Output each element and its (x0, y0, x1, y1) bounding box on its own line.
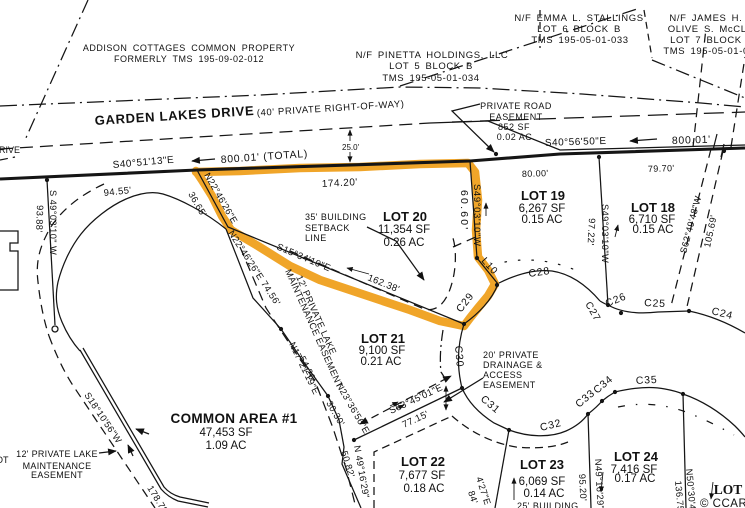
svg-text:LOT 6 BLOCK B: LOT 6 BLOCK B (537, 24, 621, 35)
svg-text:25.0': 25.0' (342, 143, 360, 152)
svg-text:93.88': 93.88' (34, 205, 45, 233)
svg-text:N/F JAMES H. &: N/F JAMES H. & (669, 13, 745, 24)
svg-text:EASEMENT: EASEMENT (483, 380, 536, 390)
svg-text:LOT 21: LOT 21 (361, 331, 405, 346)
svg-text:0.02 AC.: 0.02 AC. (497, 132, 536, 142)
svg-text:79.70': 79.70' (648, 163, 675, 174)
svg-text:0.15 AC: 0.15 AC (522, 214, 563, 226)
svg-text:LINE: LINE (305, 233, 327, 243)
svg-text:LOT 23: LOT 23 (520, 457, 564, 472)
svg-text:25' BUILDING: 25' BUILDING (517, 501, 579, 508)
svg-text:TMS 195-05-01-033: TMS 195-05-01-033 (531, 35, 628, 46)
svg-text:47,453 SF: 47,453 SF (199, 427, 252, 439)
svg-text:LOT: LOT (714, 482, 743, 497)
svg-text:S40°56'50"E: S40°56'50"E (545, 136, 607, 149)
svg-text:0.14 AC: 0.14 AC (524, 488, 565, 500)
svg-text:TMS 195-05-01-033: TMS 195-05-01-033 (663, 46, 745, 57)
svg-text:174.20': 174.20' (322, 177, 359, 190)
svg-text:95.20': 95.20' (577, 474, 588, 502)
svg-text:SETBACK: SETBACK (305, 223, 350, 233)
svg-text:RIVE: RIVE (0, 145, 20, 155)
svg-text:97.22': 97.22' (586, 218, 597, 246)
svg-text:TMS 195-05-01-034: TMS 195-05-01-034 (382, 73, 479, 84)
svg-text:12' PRIVATE LAKE: 12' PRIVATE LAKE (16, 449, 98, 459)
svg-text:© CCAR: © CCAR (700, 498, 745, 508)
svg-text:LOT 20: LOT 20 (383, 209, 427, 224)
svg-text:PRIVATE ROAD: PRIVATE ROAD (480, 101, 552, 111)
svg-text:C25: C25 (644, 297, 666, 310)
svg-text:N/F EMMA L. STALLINGS: N/F EMMA L. STALLINGS (514, 13, 643, 24)
svg-text:FORMERLY TMS 195-09-02-012: FORMERLY TMS 195-09-02-012 (114, 54, 264, 64)
svg-text:35' BUILDING: 35' BUILDING (305, 212, 367, 222)
svg-text:0.21 AC: 0.21 AC (361, 356, 402, 368)
svg-text:DRAINAGE &: DRAINAGE & (483, 360, 543, 370)
svg-text:ADDISON COTTAGES COMMON PROPER: ADDISON COTTAGES COMMON PROPERTY (83, 43, 295, 53)
svg-text:60.60': 60.60' (458, 190, 470, 231)
svg-text:LOT 22: LOT 22 (401, 454, 445, 469)
svg-text:0.15 AC: 0.15 AC (633, 224, 674, 236)
svg-text:EASEMENT: EASEMENT (31, 470, 83, 480)
svg-text:LOT 24: LOT 24 (614, 449, 659, 464)
svg-text:7,677 SF: 7,677 SF (399, 470, 446, 482)
svg-text:800.01': 800.01' (672, 134, 711, 147)
svg-text:C35: C35 (636, 374, 658, 387)
svg-text:1.09 AC: 1.09 AC (206, 440, 247, 452)
svg-text:C30: C30 (452, 345, 466, 368)
svg-text:852 SF: 852 SF (498, 122, 530, 132)
svg-text:S 49°03'10" W: S 49°03'10" W (48, 190, 58, 255)
svg-text:LOT 19: LOT 19 (521, 188, 565, 203)
svg-text:0.26 AC: 0.26 AC (384, 237, 425, 249)
svg-text:OT: OT (0, 455, 9, 465)
svg-text:LOT 5 BLOCK B: LOT 5 BLOCK B (389, 61, 473, 72)
svg-text:11,354 SF: 11,354 SF (378, 224, 430, 236)
svg-text:LOT 7 BLOCK B: LOT 7 BLOCK B (670, 35, 745, 46)
svg-text:LOT 18: LOT 18 (631, 200, 675, 215)
svg-text:S49°03'10"W: S49°03'10"W (600, 204, 610, 263)
svg-text:6,069 SF: 6,069 SF (519, 476, 566, 488)
svg-text:0.17 AC: 0.17 AC (615, 473, 656, 485)
svg-text:S49°03'10"W: S49°03'10"W (471, 184, 482, 247)
svg-text:0.18 AC: 0.18 AC (404, 483, 445, 495)
svg-text:OLIVE S. McCLAIN: OLIVE S. McCLAIN (668, 24, 745, 35)
svg-text:ACCESS: ACCESS (483, 370, 522, 380)
svg-text:80.00': 80.00' (522, 168, 549, 179)
svg-text:N/F PINETTA HOLDINGS, LLC: N/F PINETTA HOLDINGS, LLC (356, 50, 509, 61)
svg-text:COMMON AREA #1: COMMON AREA #1 (171, 411, 298, 426)
svg-text:20' PRIVATE: 20' PRIVATE (483, 350, 539, 360)
svg-text:EASEMENT: EASEMENT (489, 112, 543, 122)
